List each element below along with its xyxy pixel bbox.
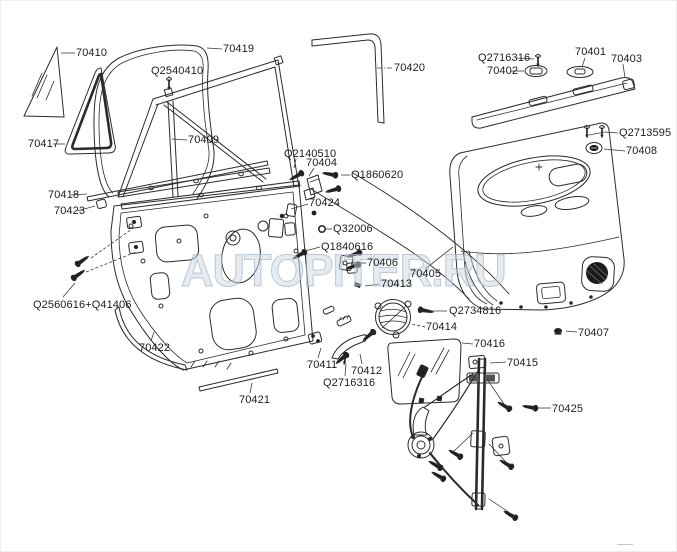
part-label-70413: 70413 xyxy=(381,278,412,291)
part-label-Q2560616+Q41406: Q2560616+Q41406 xyxy=(33,299,131,312)
part-label-Q2540410: Q2540410 xyxy=(151,65,203,78)
part-label-70421: 70421 xyxy=(239,394,270,407)
part-label-70422: 70422 xyxy=(139,342,170,355)
part-label-70405: 70405 xyxy=(410,268,441,281)
part-label-70423: 70423 xyxy=(54,205,85,218)
part-label-70409: 70409 xyxy=(188,134,219,147)
part-label-Q1840616: Q1840616 xyxy=(321,241,373,254)
clip-70423 xyxy=(96,199,107,209)
window-regulator-70415 xyxy=(408,355,510,513)
door-trim-panel xyxy=(450,123,624,310)
bolt-70425 xyxy=(522,403,538,411)
door-frame-70409 xyxy=(118,56,300,209)
bolt-q2560616-b xyxy=(70,268,86,282)
part-label-70407: 70407 xyxy=(578,327,609,340)
part-label-70408: 70408 xyxy=(626,145,657,158)
part-label-70424: 70424 xyxy=(309,197,340,210)
cap-70402 xyxy=(525,66,547,77)
striker-70404 xyxy=(286,175,322,217)
screw-q1860620-b xyxy=(325,185,341,195)
part-label-70415: 70415 xyxy=(507,357,538,370)
part-label-70418: 70418 xyxy=(48,189,79,202)
door-check-70412 xyxy=(308,306,367,359)
part-label-70419: 70419 xyxy=(223,43,254,56)
wheel-arch-molding-70422 xyxy=(115,307,187,370)
part-label-Q32006: Q32006 xyxy=(333,223,373,236)
quarter-window-seal-70417 xyxy=(65,68,115,154)
screw-q1860620-a xyxy=(322,170,338,178)
part-label-70414: 70414 xyxy=(426,321,457,334)
lower-molding-70421 xyxy=(199,369,278,391)
clip-70413 xyxy=(354,282,361,288)
speaker-70414 xyxy=(375,300,411,339)
screw-q2716316-top xyxy=(536,55,541,67)
diagram-canvas: AUTOPITER.RU 7041070419Q254041070420Q271… xyxy=(0,0,677,552)
exploded-diagram-art xyxy=(1,1,677,552)
part-label-70404: 70404 xyxy=(306,157,337,170)
cap-70401 xyxy=(567,67,593,78)
screw-q2713595-b xyxy=(600,126,605,138)
screw-q2713595-a xyxy=(585,126,590,138)
quarter-glass-70410 xyxy=(24,47,64,117)
bolt-q2560616-a xyxy=(74,254,90,268)
clip-70407 xyxy=(554,328,562,334)
part-label-70416: 70416 xyxy=(474,338,505,351)
bracket-70411 xyxy=(308,332,322,345)
grommet-q32006 xyxy=(319,226,325,232)
part-label-70403: 70403 xyxy=(611,53,642,66)
part-label-70402: 70402 xyxy=(487,65,518,78)
part-label-70420: 70420 xyxy=(394,62,425,75)
part-label-Q2716316: Q2716316 xyxy=(323,377,375,390)
part-label-70417: 70417 xyxy=(28,138,59,151)
part-label-Q1860620: Q1860620 xyxy=(351,169,403,182)
part-label-Q2716316: Q2716316 xyxy=(478,52,530,65)
part-label-70411: 70411 xyxy=(307,359,337,372)
part-label-70425: 70425 xyxy=(552,403,583,416)
part-label-70406: 70406 xyxy=(367,257,398,270)
part-label-70410: 70410 xyxy=(76,47,107,60)
corner-dash xyxy=(617,544,633,545)
part-label-Q2713595: Q2713595 xyxy=(619,127,671,140)
part-label-Q2734816: Q2734816 xyxy=(449,305,501,318)
glass-run-channel-70420 xyxy=(312,34,384,123)
part-label-70401: 70401 xyxy=(575,46,606,59)
